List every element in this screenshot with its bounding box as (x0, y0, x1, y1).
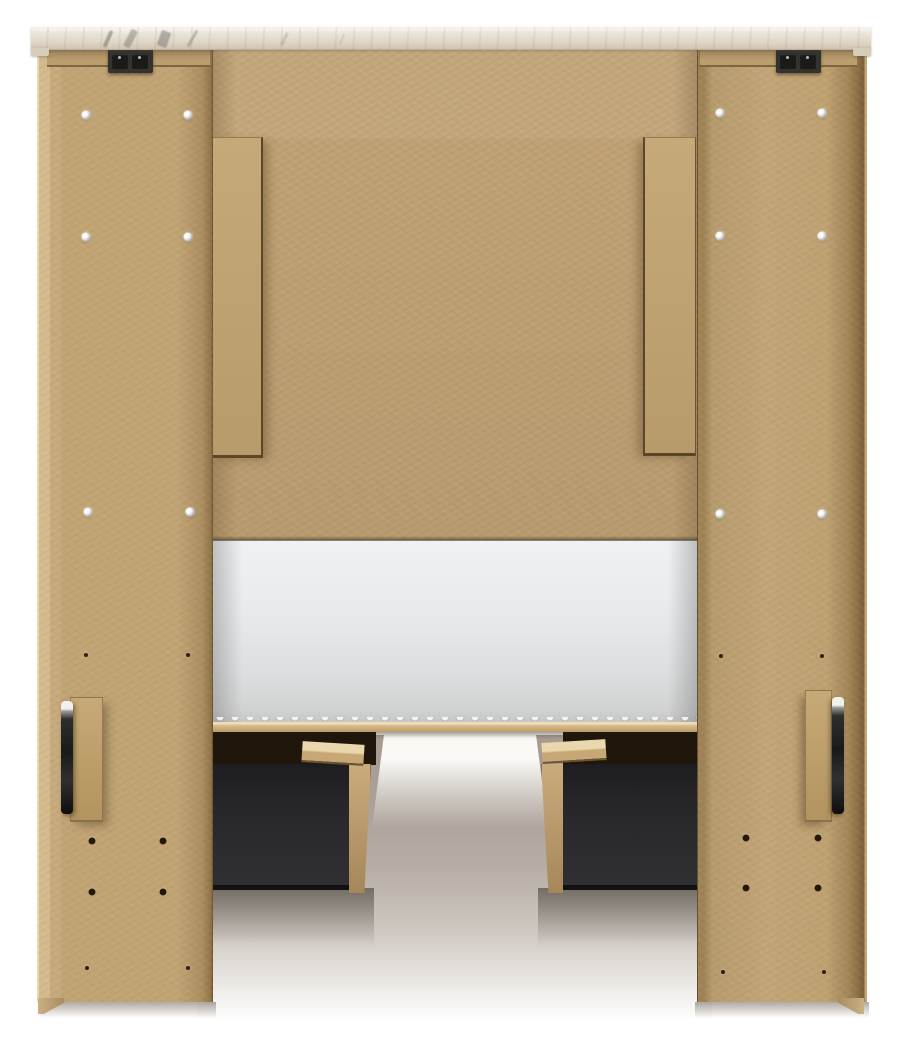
screw (818, 510, 827, 519)
product-photo-bed-back-view (0, 0, 901, 1050)
right-mounting-stile (643, 137, 696, 456)
left-drawer-floor-shadow (212, 888, 374, 946)
dowel-hole (160, 838, 167, 845)
headboard-panel-bottom-shadow (213, 536, 697, 541)
top-cap-end-lip (31, 48, 49, 56)
dowel-hole (815, 835, 822, 842)
left-drawer-glide-rail (301, 741, 364, 766)
pilot-hole (85, 966, 89, 970)
pilot-hole (719, 654, 723, 658)
bracket-socket (780, 54, 796, 69)
wood-vein (186, 30, 198, 48)
dowel-hole (89, 889, 96, 896)
dowel-hole (160, 889, 167, 896)
screw (184, 233, 193, 242)
dowel-hole (89, 838, 96, 845)
left-mounting-bracket (108, 49, 153, 73)
screw (184, 111, 193, 120)
wood-vein (103, 30, 114, 48)
right-handle-block (805, 690, 832, 822)
bracket-socket (132, 54, 148, 69)
pilot-hole (84, 653, 88, 657)
pilot-hole (186, 966, 190, 970)
screw (716, 510, 725, 519)
dowel-hole (815, 885, 822, 892)
wood-vein (339, 33, 345, 45)
right-handle (832, 697, 844, 814)
right-storage-drawer (563, 764, 697, 890)
pilot-hole (721, 970, 725, 974)
right-mounting-bracket (776, 49, 821, 73)
screw (818, 232, 827, 241)
dowel-hole (743, 835, 750, 842)
right-pier-back-panel (697, 50, 867, 1002)
screw (716, 232, 725, 241)
left-storage-drawer (213, 764, 349, 890)
left-handle (61, 701, 73, 814)
screw (82, 111, 91, 120)
headboard-back-panel (213, 50, 697, 540)
wood-vein (280, 32, 289, 46)
left-pier-back-panel (37, 50, 213, 1002)
right-drawer-glide-rail (541, 739, 606, 764)
left-handle-block (70, 697, 103, 822)
dowel-hole (743, 885, 750, 892)
top-cap-board (31, 27, 871, 50)
left-mounting-stile (210, 137, 263, 458)
pilot-hole (822, 970, 826, 974)
screw (716, 109, 725, 118)
screw (82, 233, 91, 242)
left-pier-floor-shadow (40, 1002, 216, 1018)
screw (818, 109, 827, 118)
bracket-socket (112, 54, 128, 69)
wood-vein (157, 30, 172, 48)
screw (186, 508, 195, 517)
bracket-socket (800, 54, 816, 69)
wood-vein (123, 28, 138, 48)
right-drawer-floor-shadow (538, 888, 700, 946)
mattress (213, 540, 697, 722)
pilot-hole (186, 653, 190, 657)
screw (84, 508, 93, 517)
pilot-hole (820, 654, 824, 658)
top-cap-end-lip (853, 48, 871, 56)
underbed-light-glow (372, 732, 548, 828)
